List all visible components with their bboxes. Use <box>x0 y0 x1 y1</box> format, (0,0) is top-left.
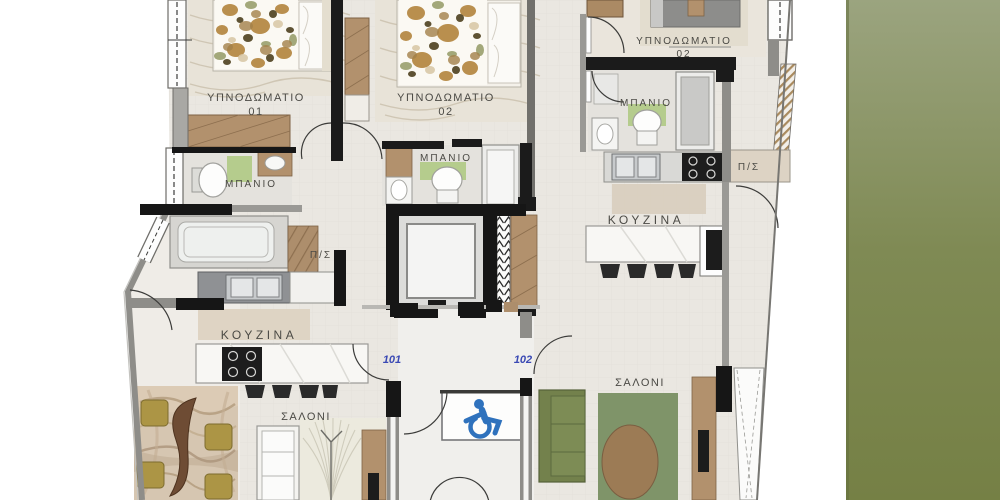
svg-text:Π/Σ: Π/Σ <box>738 162 760 173</box>
svg-text:02: 02 <box>676 49 691 60</box>
svg-text:ΚΟΥΖΙΝΑ: ΚΟΥΖΙΝΑ <box>608 213 684 227</box>
svg-text:Π/Σ: Π/Σ <box>310 250 332 261</box>
svg-text:ΥΠΝΟΔΩΜΑΤΙΟ: ΥΠΝΟΔΩΜΑΤΙΟ <box>636 36 732 47</box>
svg-text:ΜΠΑΝΙΟ: ΜΠΑΝΙΟ <box>620 98 672 109</box>
svg-text:101: 101 <box>383 354 401 366</box>
svg-text:02: 02 <box>438 106 453 118</box>
svg-text:ΚΟΥΖΙΝΑ: ΚΟΥΖΙΝΑ <box>221 328 297 342</box>
svg-text:ΜΠΑΝΙΟ: ΜΠΑΝΙΟ <box>225 179 277 190</box>
svg-text:102: 102 <box>514 354 532 366</box>
svg-text:ΥΠΝΟΔΩΜΑΤΙΟ: ΥΠΝΟΔΩΜΑΤΙΟ <box>207 92 305 104</box>
svg-text:01: 01 <box>248 106 263 118</box>
svg-text:ΣΑΛΟΝΙ: ΣΑΛΟΝΙ <box>615 377 665 389</box>
svg-text:ΣΑΛΟΝΙ: ΣΑΛΟΝΙ <box>281 411 331 423</box>
svg-text:ΥΠΝΟΔΩΜΑΤΙΟ: ΥΠΝΟΔΩΜΑΤΙΟ <box>397 92 495 104</box>
svg-text:ΜΠΑΝΙΟ: ΜΠΑΝΙΟ <box>420 153 472 164</box>
